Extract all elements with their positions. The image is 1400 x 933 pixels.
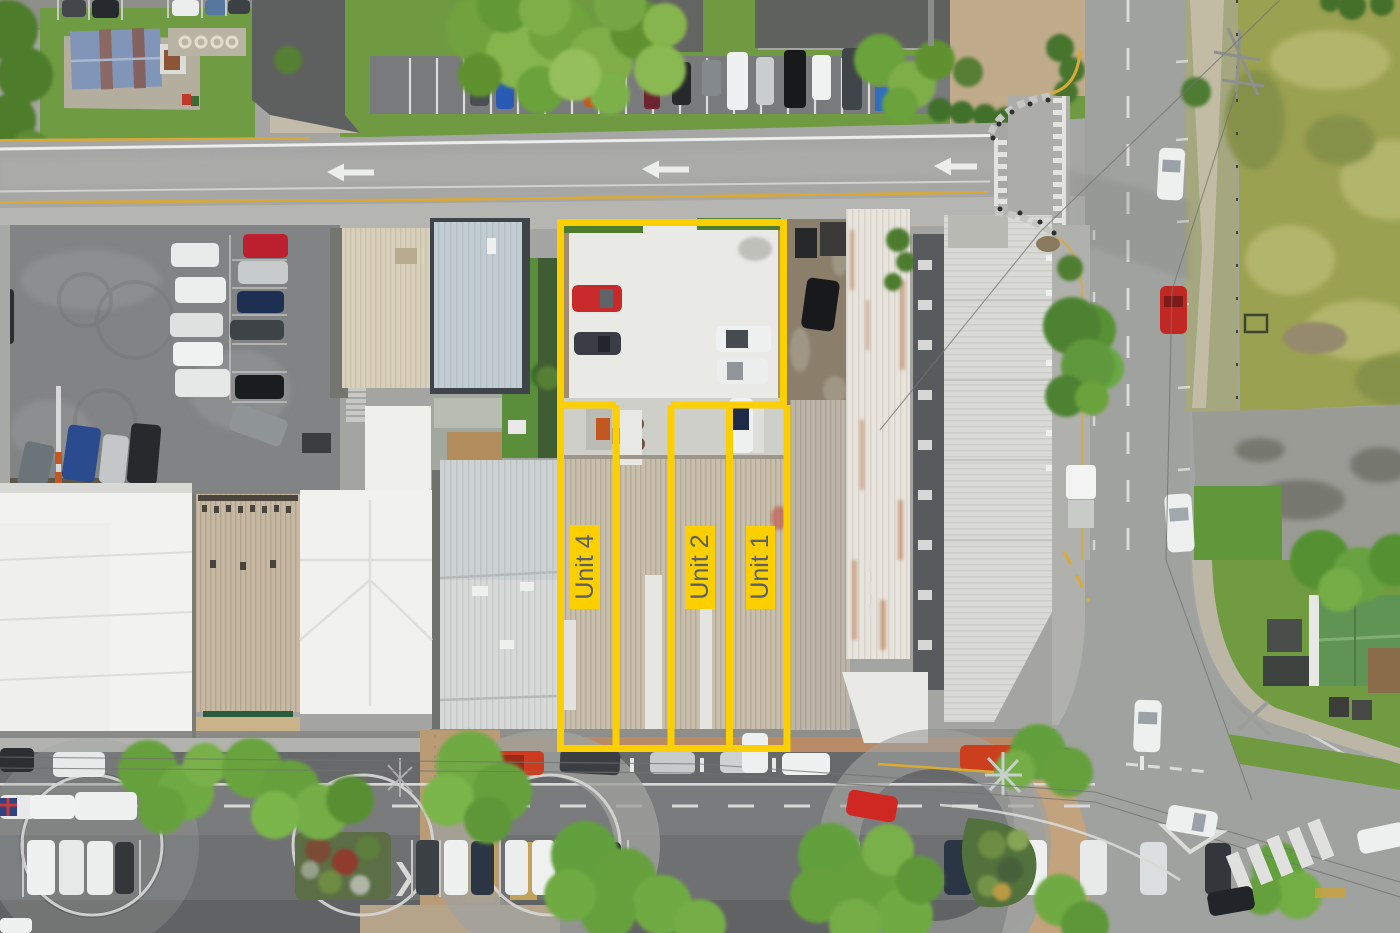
svg-text:Unit 4: Unit 4 xyxy=(571,534,599,599)
svg-text:Unit 2: Unit 2 xyxy=(686,534,714,599)
svg-text:Unit 1: Unit 1 xyxy=(746,534,774,599)
